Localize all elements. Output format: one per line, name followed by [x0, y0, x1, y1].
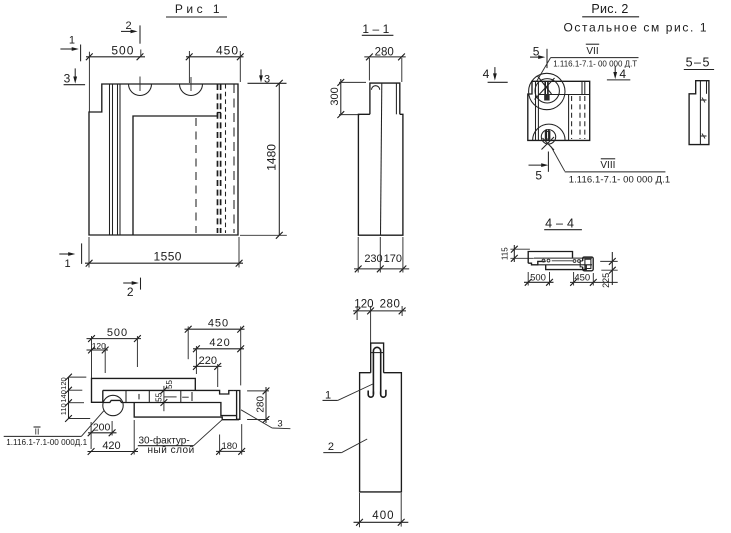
svg-text:1.116.1-7.1-00 000Д.1: 1.116.1-7.1-00 000Д.1	[6, 438, 87, 447]
svg-text:VII: VII	[586, 46, 598, 57]
svg-text:420: 420	[209, 337, 230, 349]
svg-text:1–1: 1–1	[362, 22, 393, 36]
svg-text:450: 450	[208, 318, 229, 330]
svg-text:55: 55	[165, 380, 174, 389]
svg-text:5: 5	[535, 169, 542, 183]
svg-text:225: 225	[601, 273, 611, 288]
svg-text:110: 110	[59, 403, 68, 415]
svg-text:Остальное см рис. 1: Остальное см рис. 1	[563, 21, 708, 35]
svg-text:4: 4	[483, 67, 490, 81]
svg-text:450: 450	[216, 44, 239, 58]
svg-text:115: 115	[501, 247, 510, 260]
svg-text:120: 120	[59, 377, 68, 390]
svg-text:180: 180	[221, 441, 237, 452]
svg-text:II: II	[35, 427, 40, 437]
svg-text:55: 55	[155, 392, 164, 401]
svg-text:4–4: 4–4	[545, 217, 578, 231]
svg-text:1: 1	[325, 389, 331, 401]
svg-text:140: 140	[59, 390, 68, 403]
svg-text:500: 500	[111, 44, 134, 58]
svg-text:5–5: 5–5	[686, 56, 711, 70]
svg-text:4: 4	[619, 67, 626, 81]
svg-text:220: 220	[199, 355, 217, 367]
svg-text:420: 420	[102, 440, 120, 452]
svg-text:1550: 1550	[154, 249, 182, 263]
svg-text:Рис. 2: Рис. 2	[591, 2, 628, 16]
svg-text:170: 170	[384, 253, 402, 265]
svg-text:280: 280	[380, 299, 401, 311]
svg-text:2: 2	[328, 441, 334, 453]
svg-text:2: 2	[127, 285, 134, 299]
svg-text:3: 3	[64, 72, 71, 86]
svg-text:1.116.1-7.1- 00 000 Д.1: 1.116.1-7.1- 00 000 Д.1	[569, 175, 671, 186]
svg-text:ный слой: ный слой	[148, 445, 195, 456]
svg-text:280: 280	[255, 396, 266, 413]
svg-text:450: 450	[574, 272, 590, 283]
svg-text:3: 3	[277, 418, 282, 429]
svg-text:200: 200	[93, 421, 111, 433]
svg-text:300: 300	[329, 87, 341, 105]
svg-text:Рис 1: Рис 1	[175, 2, 223, 16]
svg-text:500: 500	[107, 327, 128, 339]
svg-text:VIII: VIII	[600, 160, 615, 171]
svg-text:1480: 1480	[264, 144, 278, 171]
svg-text:1: 1	[69, 35, 75, 47]
svg-text:1: 1	[64, 258, 70, 270]
svg-text:400: 400	[372, 510, 394, 522]
